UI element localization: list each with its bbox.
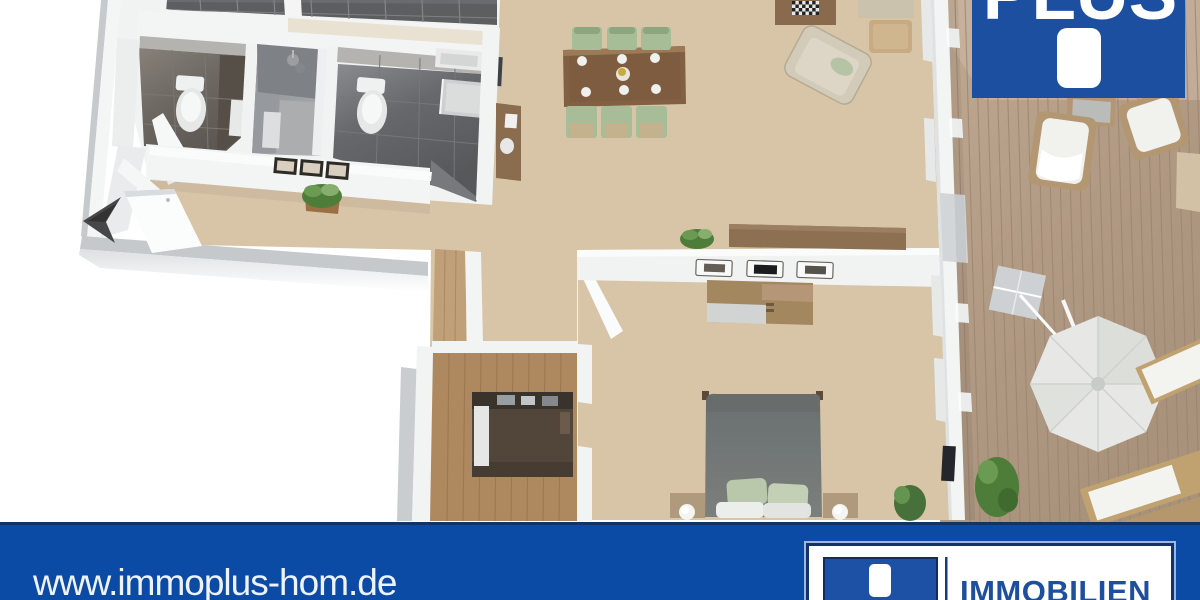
svg-text:IMMOBILIEN: IMMOBILIEN <box>960 574 1151 600</box>
svg-text:www.immoplus-hom.de: www.immoplus-hom.de <box>32 562 396 600</box>
